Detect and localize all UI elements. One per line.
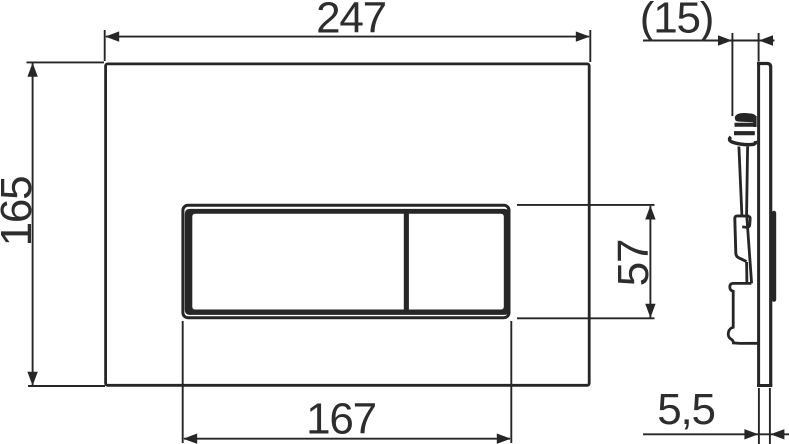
svg-text:167: 167 (306, 394, 376, 443)
svg-text:57: 57 (609, 240, 658, 287)
svg-text:5,5: 5,5 (657, 385, 715, 434)
svg-text:165: 165 (0, 177, 41, 247)
svg-text:(15): (15) (640, 0, 713, 43)
svg-text:247: 247 (316, 0, 386, 43)
